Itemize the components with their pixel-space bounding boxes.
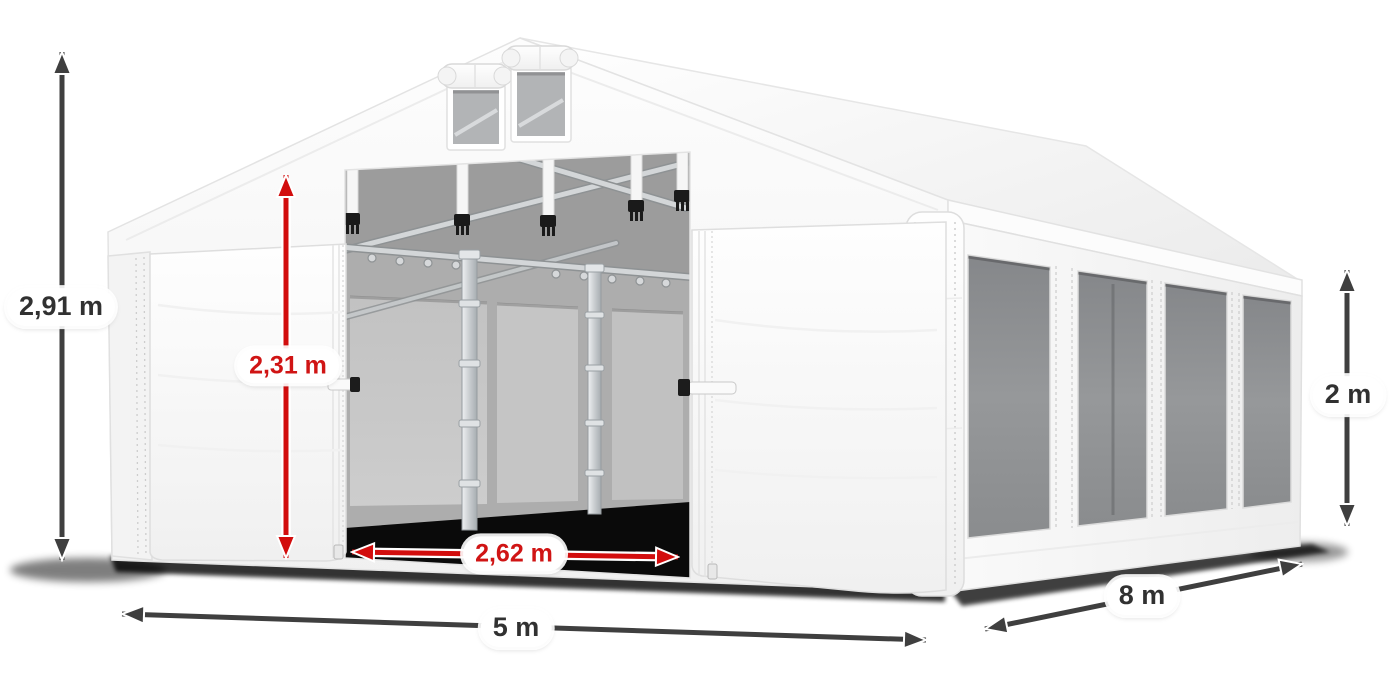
left-door-panel: [150, 244, 360, 561]
side-windows: [968, 255, 1291, 538]
left-corner-strip: [108, 252, 152, 560]
interior-pole-1: [459, 250, 480, 530]
tent-interior: [340, 145, 696, 585]
dimension-label-entrance-width: 2,62 m: [463, 536, 565, 571]
gable-vent-1: [438, 64, 512, 150]
dimension-label-total-height: 2,91 m: [7, 288, 115, 326]
tent-illustration: [0, 0, 1400, 700]
side-window-4: [1243, 295, 1291, 508]
side-window-2: [1078, 271, 1147, 526]
dimension-label-front-width: 5 m: [481, 609, 552, 647]
gable-vent-2: [502, 46, 578, 142]
dimension-label-side-length: 8 m: [1107, 577, 1178, 615]
dimension-label-side-wall-height: 2 m: [1313, 376, 1384, 414]
side-window-1: [968, 255, 1050, 538]
right-door-tie: [678, 379, 736, 396]
left-door-zipper-pull: [334, 545, 343, 559]
side-window-3: [1165, 283, 1227, 516]
tent-dimension-diagram: 2,91 m 2,31 m 2,62 m 5 m 8 m 2 m: [0, 0, 1400, 700]
right-door-zipper-pull: [708, 564, 717, 579]
interior-pole-2: [585, 264, 604, 514]
interior-windows: [350, 296, 683, 506]
dimension-label-entrance-height: 2,31 m: [237, 348, 339, 383]
right-door-panel: [678, 222, 946, 593]
